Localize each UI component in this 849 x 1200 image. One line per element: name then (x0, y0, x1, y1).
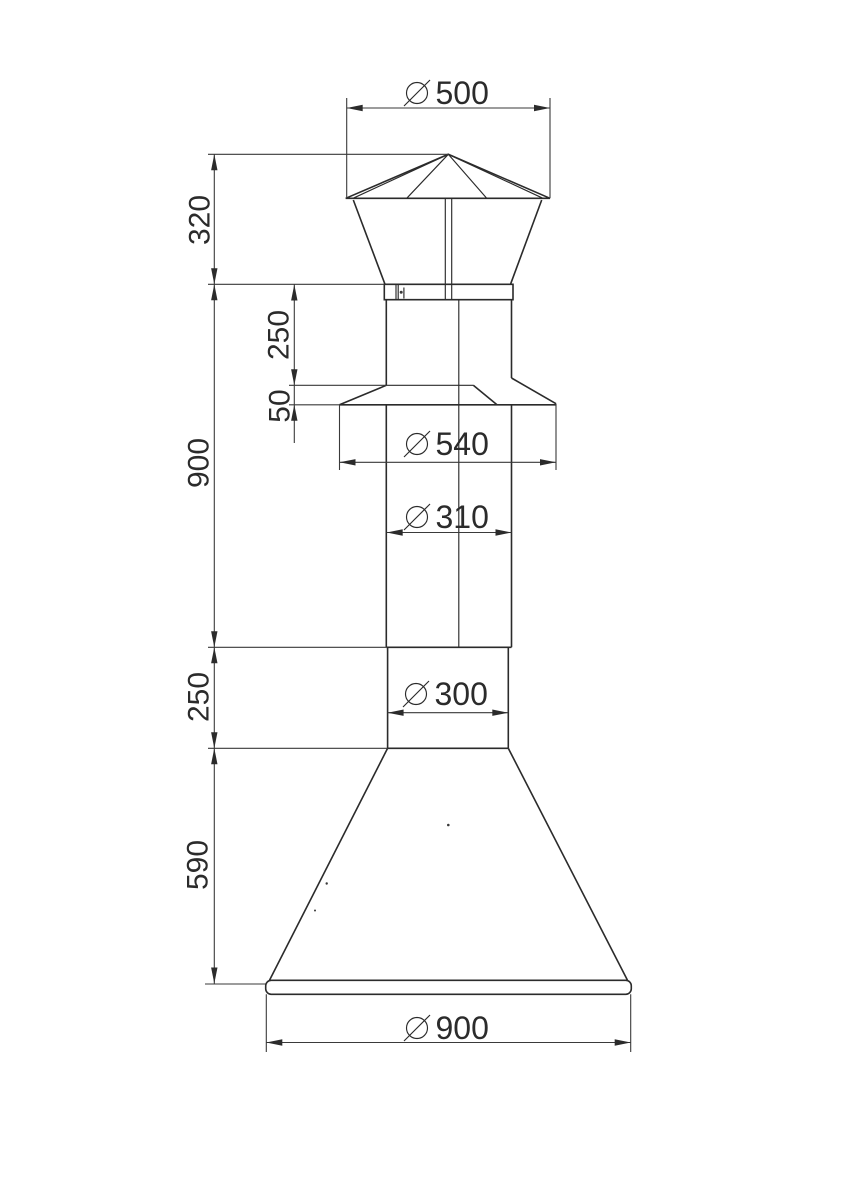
rain-cap (346, 154, 550, 198)
linear-dimension-labels: 320 900 250 590 250 50 (182, 195, 297, 890)
dimension-lines (214, 108, 630, 1043)
chimney-cowl-drawing: 320 900 250 590 250 50 500 540 310 300 (0, 0, 849, 1200)
cap-facet-lines (353, 154, 543, 198)
dim-outlet-diameter: 300 (403, 676, 488, 712)
arrowheads (211, 105, 631, 1046)
cone-speck-3 (314, 910, 316, 912)
dim-cap-diameter: 500 (404, 75, 489, 111)
dim-cone-height: 590 (182, 840, 215, 890)
cap-skirt (353, 200, 541, 284)
flange (340, 378, 557, 405)
flange-inner-diagonal (473, 385, 497, 404)
dim-outlet-height: 250 (183, 672, 216, 722)
ext-cap-diameter (347, 98, 550, 198)
pipe-body (386, 300, 511, 648)
collar-band (384, 284, 513, 299)
dim-body-height: 900 (183, 438, 216, 488)
svg-text:540: 540 (436, 426, 489, 462)
extension-lines (205, 98, 631, 1052)
cone-speck-1 (447, 824, 450, 827)
base-rim (266, 980, 632, 994)
cap-silhouette (346, 154, 550, 198)
svg-text:310: 310 (436, 499, 489, 535)
dim-base-diameter: 900 (404, 1010, 489, 1046)
drawing-sheet: 320 900 250 590 250 50 500 540 310 300 (0, 0, 849, 1200)
dim-neck-height: 250 (263, 310, 296, 360)
dim-flange-drop: 50 (264, 389, 297, 422)
cone-speck-2 (326, 882, 328, 884)
cone-hood (270, 748, 628, 980)
dim-pipe-diameter: 310 (404, 499, 489, 535)
dim-flange-diameter: 540 (404, 426, 489, 462)
svg-text:300: 300 (435, 676, 488, 712)
skirt-right-edge (511, 200, 542, 284)
base-rim-outline (266, 980, 632, 994)
diameter-labels: 500 540 310 300 900 (403, 75, 489, 1046)
dim-cap-height: 320 (184, 195, 217, 245)
flange-left-flare (340, 385, 387, 404)
collar-rivet-dot (400, 291, 403, 294)
svg-text:900: 900 (436, 1010, 489, 1046)
skirt-left-edge (353, 200, 385, 284)
cone-right-slope (508, 748, 627, 980)
cone-left-slope (270, 748, 388, 980)
svg-text:500: 500 (436, 75, 489, 111)
flange-right-flare (512, 378, 557, 404)
